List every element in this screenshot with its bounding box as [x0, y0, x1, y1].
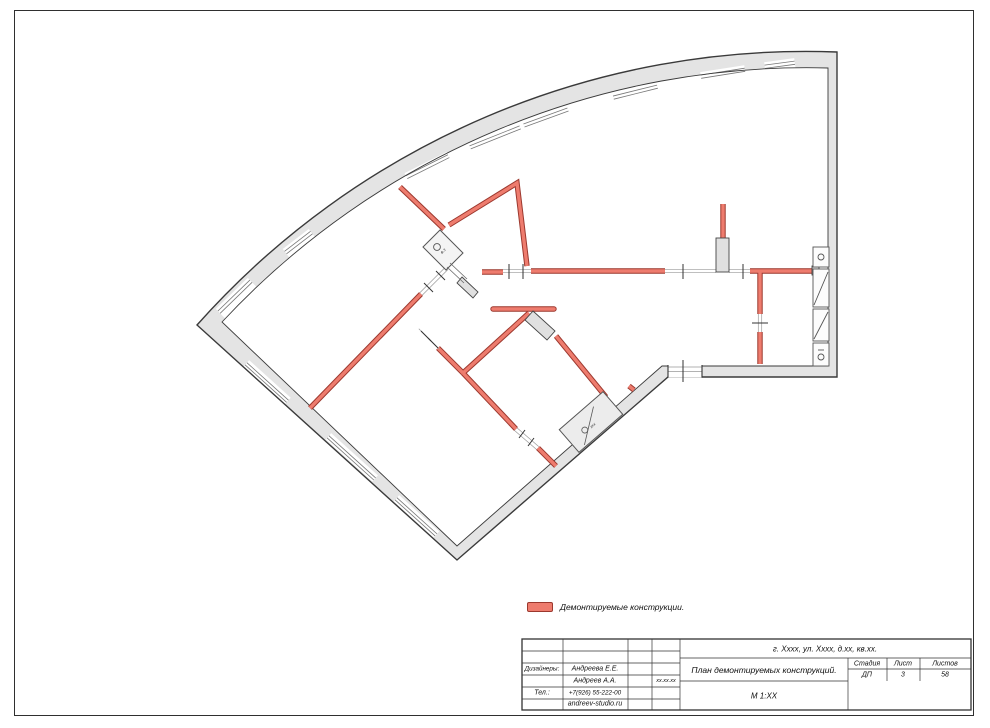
sheet-label: Лист — [894, 661, 912, 668]
sheet-value: 3 — [901, 672, 905, 679]
drawing-sheet: в.з xxx — [0, 0, 990, 728]
website-value: andreev-studio.ru — [568, 701, 622, 708]
drawing-scale: М 1:ХХ — [751, 692, 777, 701]
window — [326, 433, 378, 481]
ventilation-shaft: в.з — [423, 230, 467, 283]
phone-label: Тел.: — [534, 690, 550, 697]
legend: Демонтируемые конструкции. — [527, 600, 684, 614]
legend-label: Демонтируемые конструкции. — [560, 602, 684, 612]
title-block-address: г. Хххх, ул. Хххх, д.хх, кв.хх. — [773, 645, 877, 654]
demolished-walls — [310, 183, 814, 466]
sheets-label: Листов — [932, 661, 958, 668]
phone-value: +7(926) 55-222-00 — [569, 690, 621, 697]
closet — [813, 247, 829, 267]
drawing-title: План демонтируемых конструкций. — [691, 665, 836, 675]
wall-pier — [525, 311, 555, 340]
door-jamb — [457, 277, 478, 298]
date-cell: xx.xx.xx — [656, 678, 676, 684]
stage-label: Стадия — [854, 661, 880, 668]
window — [394, 495, 440, 537]
wall-piers — [457, 238, 819, 340]
designers-label: Дизайнеры: — [525, 666, 560, 673]
closets — [813, 247, 829, 366]
wall-pier — [716, 238, 729, 272]
sheets-value: 58 — [941, 672, 949, 679]
designer-2: Андреев А.А. — [574, 678, 617, 685]
designer-1: Андреева Е.Е. — [572, 666, 619, 673]
stage-value: ДП — [862, 672, 872, 679]
legend-swatch — [527, 602, 553, 612]
arc-windows — [216, 58, 796, 537]
corridor-doorway — [668, 360, 702, 382]
floor-plan: в.з xxx — [0, 0, 990, 728]
closet — [813, 343, 829, 366]
